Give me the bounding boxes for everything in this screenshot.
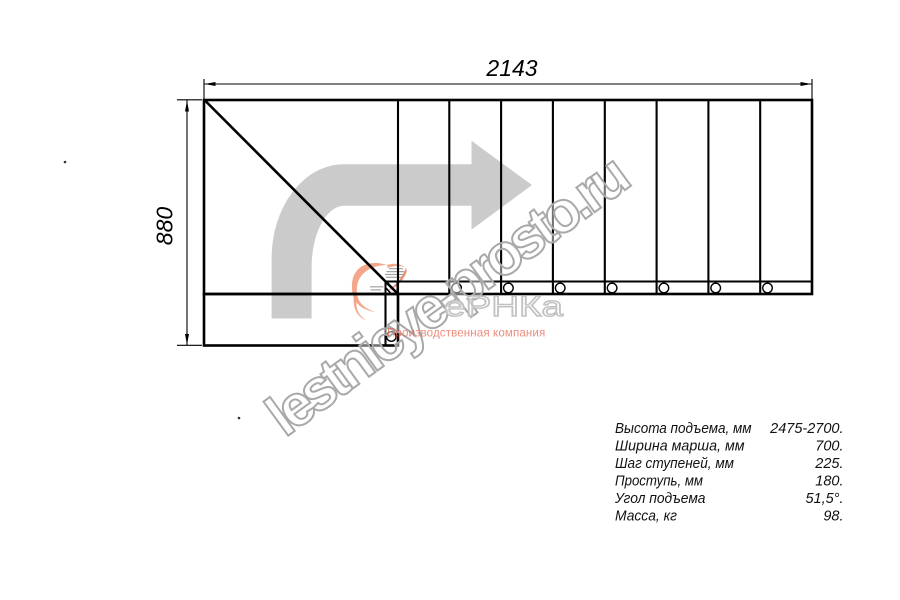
svg-text:700.: 700.: [815, 438, 843, 454]
svg-text:Высота подъема, мм: Высота подъема, мм: [615, 421, 752, 437]
svg-text:Угол подъема: Угол подъема: [614, 491, 705, 507]
svg-text:Шаг ступеней, мм: Шаг ступеней, мм: [615, 456, 734, 472]
svg-text:225.: 225.: [814, 456, 843, 472]
svg-text:2143: 2143: [485, 55, 537, 81]
svg-text:Ширина марша, мм: Ширина марша, мм: [615, 438, 745, 454]
svg-text:Производственная компания: Производственная компания: [387, 327, 545, 340]
svg-text:Проступь, мм: Проступь, мм: [615, 473, 703, 489]
svg-text:еРНКа: еРНКа: [444, 291, 564, 323]
svg-text:Масса, кг: Масса, кг: [615, 508, 677, 524]
svg-text:2475-2700.: 2475-2700.: [769, 421, 843, 437]
svg-text:880: 880: [152, 207, 178, 246]
svg-text:98.: 98.: [823, 508, 843, 524]
svg-text:51,5°.: 51,5°.: [805, 491, 843, 507]
svg-text:180.: 180.: [815, 473, 843, 489]
